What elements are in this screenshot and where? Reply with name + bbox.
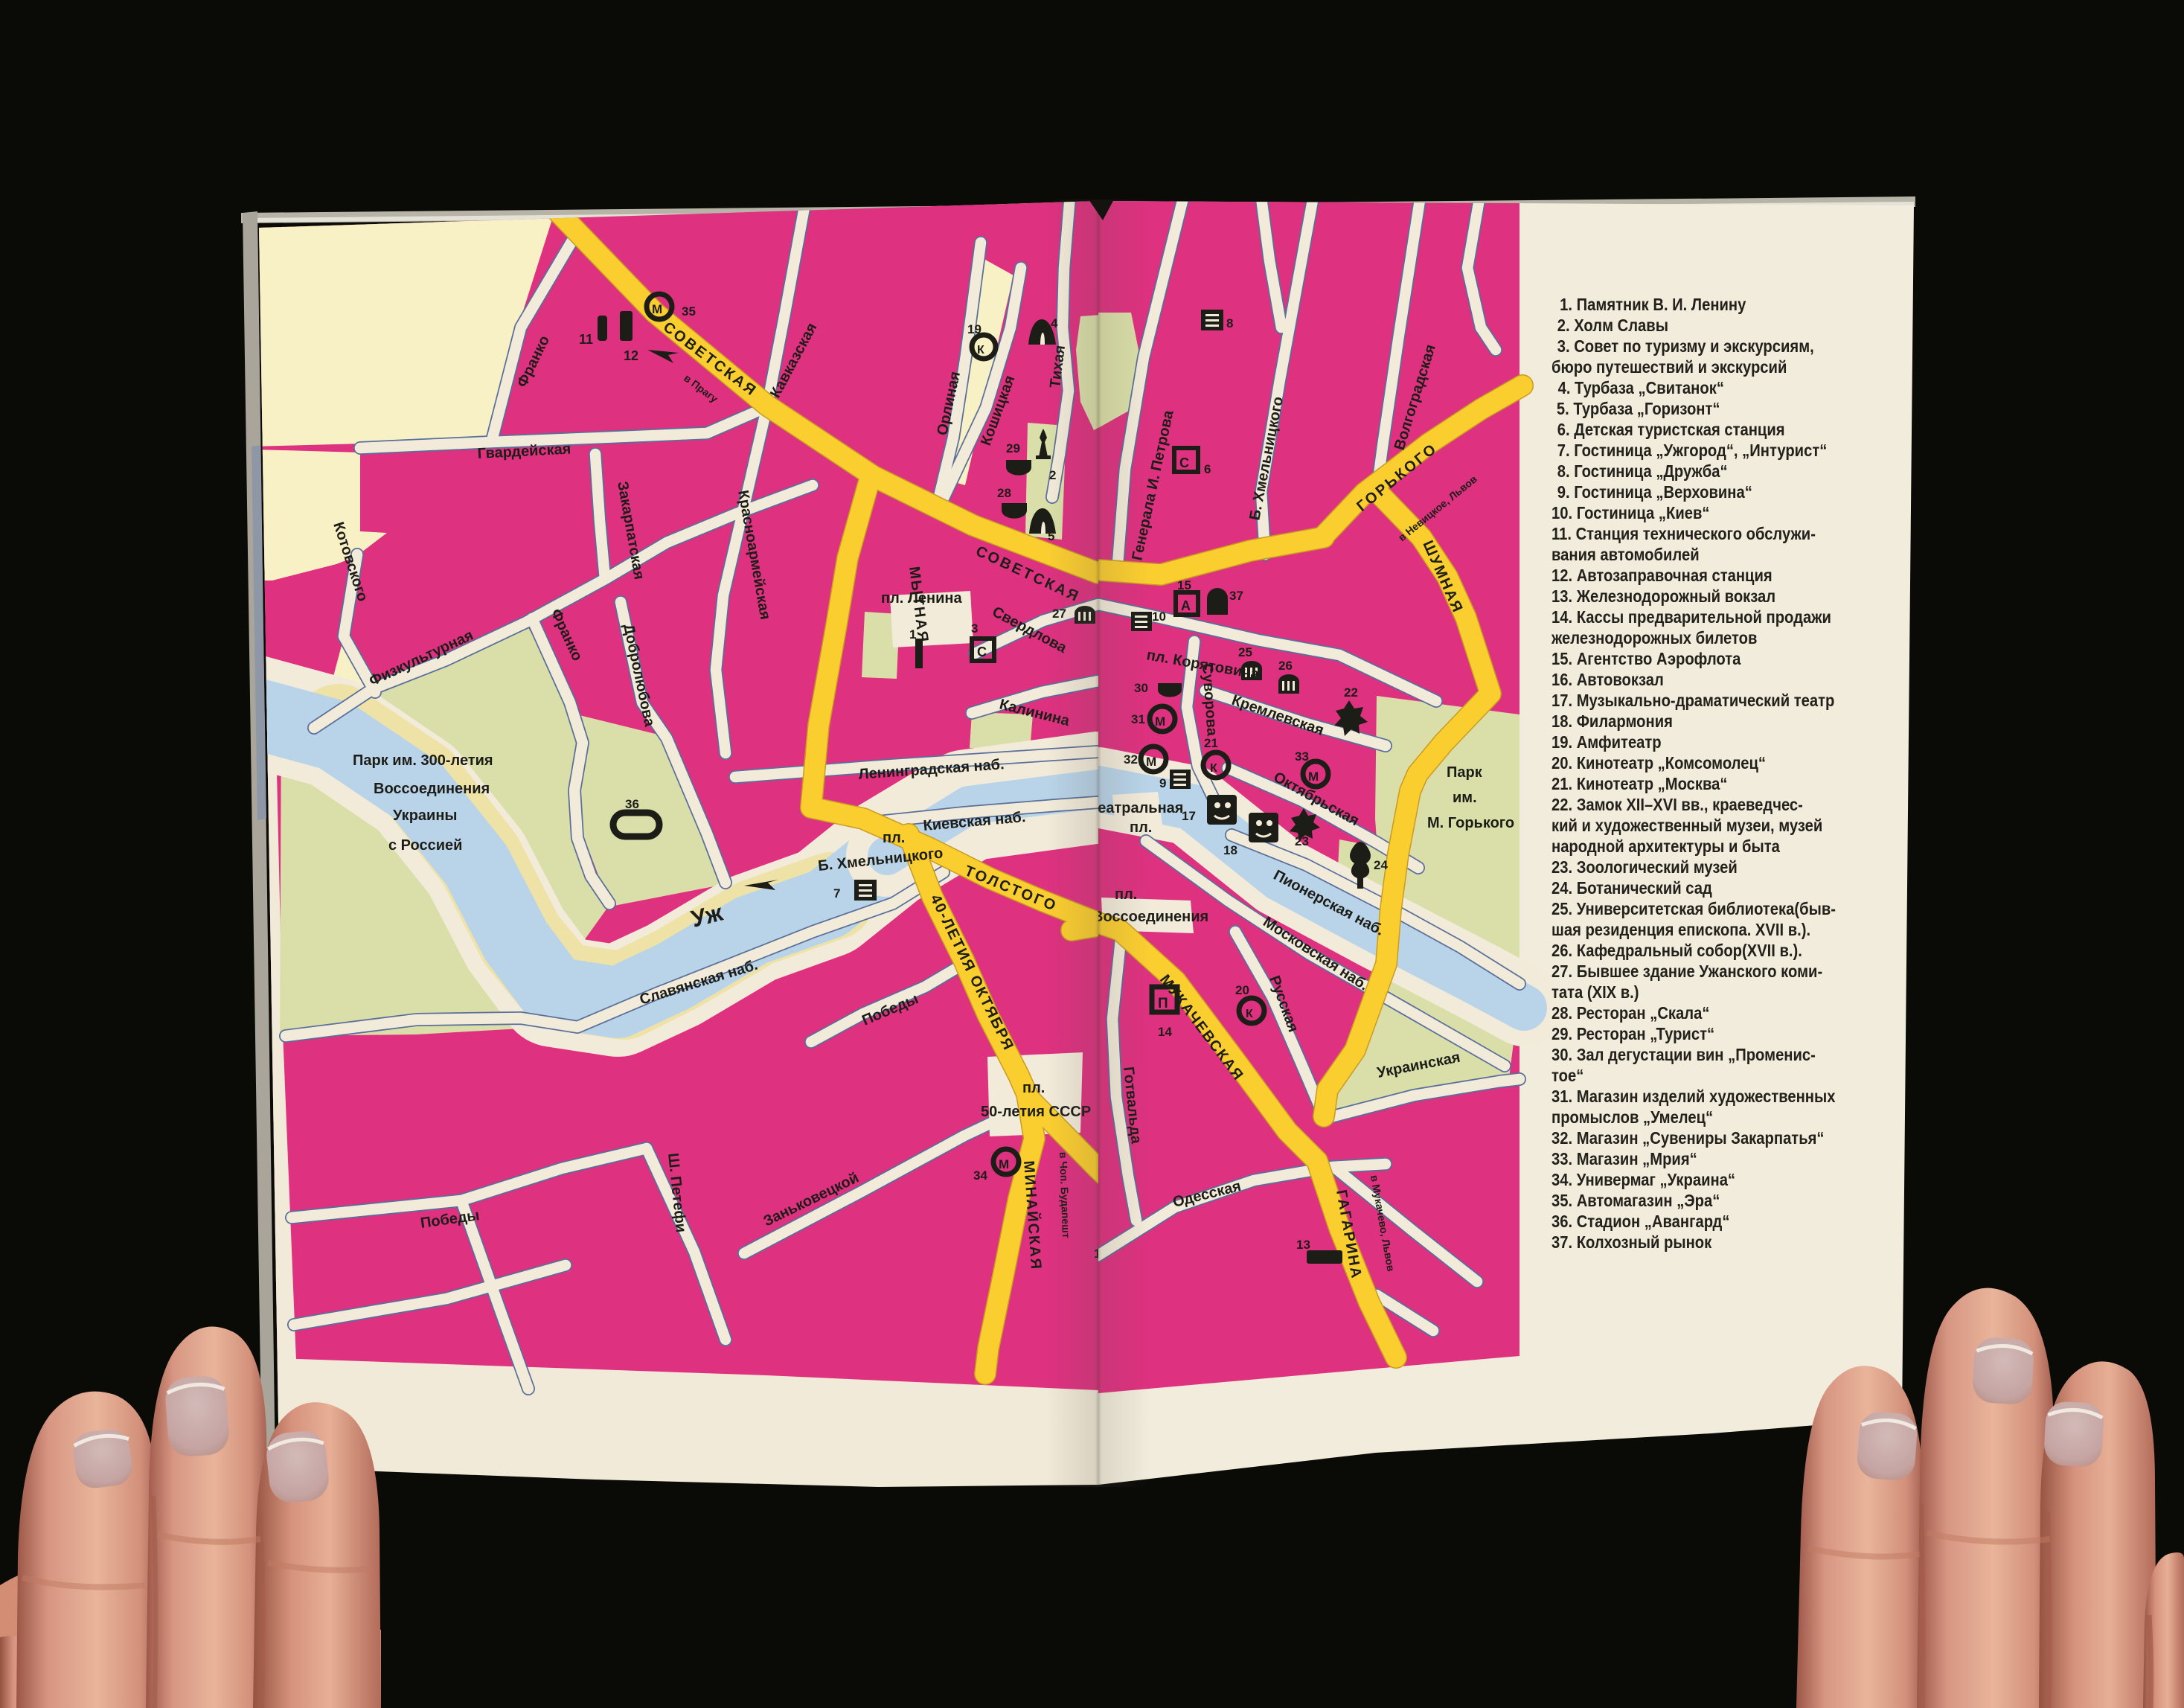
svg-text:пл.: пл. xyxy=(883,830,905,846)
svg-text:29: 29 xyxy=(1006,441,1020,455)
svg-text:вания автомобилей: вания автомобилей xyxy=(1551,545,1700,565)
svg-text:народной архитектуры и быта: народной архитектуры и быта xyxy=(1551,837,1781,857)
svg-text:16. Автовокзал: 16. Автовокзал xyxy=(1551,670,1664,690)
svg-text:26. Кафедральный собор(XVII в.: 26. Кафедральный собор(XVII в.). xyxy=(1551,941,1802,961)
svg-text:им.: им. xyxy=(1453,790,1477,806)
svg-text:22: 22 xyxy=(1344,685,1358,700)
svg-text:К: К xyxy=(977,344,984,356)
svg-text:С: С xyxy=(977,645,987,659)
svg-text:тата (XIX в.): тата (XIX в.) xyxy=(1551,982,1639,1002)
svg-text:25. Университетская библиотека: 25. Университетская библиотека(быв- xyxy=(1551,899,1836,919)
svg-text:23. Зоологический музей: 23. Зоологический музей xyxy=(1551,857,1738,877)
svg-text:17: 17 xyxy=(1182,809,1196,823)
svg-text:6: 6 xyxy=(1204,462,1211,476)
svg-text:36: 36 xyxy=(625,797,639,811)
svg-text:31. Магазин изделий художестве: 31. Магазин изделий художественных xyxy=(1551,1087,1836,1107)
svg-text:34: 34 xyxy=(973,1168,987,1183)
svg-text:железнодорожных билетов: железнодорожных билетов xyxy=(1551,628,1757,648)
svg-text:18. Филармония: 18. Филармония xyxy=(1551,711,1673,732)
svg-text:25: 25 xyxy=(1238,645,1252,659)
svg-text:9: 9 xyxy=(1159,776,1166,790)
svg-text:19: 19 xyxy=(967,322,981,336)
svg-text:35: 35 xyxy=(682,304,696,319)
svg-text:К: К xyxy=(1246,1008,1253,1020)
svg-text:шая резиденция епископа. XVII: шая резиденция епископа. XVII в.). xyxy=(1551,920,1810,940)
svg-text:35. Автомагазин „Эра“: 35. Автомагазин „Эра“ xyxy=(1551,1191,1720,1211)
svg-text:пл.: пл. xyxy=(1022,1080,1045,1096)
svg-text:36. Стадион „Авангард“: 36. Стадион „Авангард“ xyxy=(1551,1212,1729,1232)
svg-text:23: 23 xyxy=(1295,834,1309,848)
svg-text:кий и художественный музеи, му: кий и художественный музеи, музей xyxy=(1551,816,1822,836)
svg-text:А: А xyxy=(1181,598,1191,613)
svg-text:бюро путешествий и экскурсий: бюро путешествий и экскурсий xyxy=(1551,357,1787,377)
svg-text:5. Турбаза „Горизонт“: 5. Турбаза „Горизонт“ xyxy=(1557,399,1720,419)
svg-text:14: 14 xyxy=(1158,1025,1172,1039)
svg-text:12: 12 xyxy=(624,348,638,363)
svg-text:34. Универмаг „Украина“: 34. Универмаг „Украина“ xyxy=(1551,1170,1735,1190)
svg-text:8. Гостиница „Дружба“: 8. Гостиница „Дружба“ xyxy=(1557,461,1728,482)
svg-text:Парк им. 300-летия: Парк им. 300-летия xyxy=(353,752,493,769)
svg-text:1. Памятник В. И. Ленину: 1. Памятник В. И. Ленину xyxy=(1560,295,1746,315)
svg-text:37: 37 xyxy=(1229,589,1243,603)
svg-text:К: К xyxy=(1210,762,1217,775)
svg-text:32. Магазин „Сувениры Закарпат: 32. Магазин „Сувениры Закарпатья“ xyxy=(1551,1128,1825,1148)
svg-text:27. Бывшее здание Ужанского ко: 27. Бывшее здание Ужанского коми- xyxy=(1551,962,1822,982)
svg-text:П: П xyxy=(1158,996,1168,1011)
svg-text:18: 18 xyxy=(1223,843,1237,857)
svg-text:22. Замок XII–XVI вв., краевед: 22. Замок XII–XVI вв., краеведчес- xyxy=(1551,795,1803,815)
svg-text:Воссоединения: Воссоединения xyxy=(374,781,490,797)
svg-text:26: 26 xyxy=(1278,659,1293,673)
svg-text:30. Зал дегустации вин „Промен: 30. Зал дегустации вин „Променис- xyxy=(1551,1045,1816,1065)
svg-text:15. Агентство Аэрофлота: 15. Агентство Аэрофлота xyxy=(1551,649,1741,669)
svg-text:3. Совет по туризму и экскурси: 3. Совет по туризму и экскурсиям, xyxy=(1557,336,1814,356)
svg-text:7: 7 xyxy=(833,886,840,901)
svg-text:37. Колхозный рынок: 37. Колхозный рынок xyxy=(1551,1232,1711,1253)
svg-text:20. Кинотеатр „Комсомолец“: 20. Кинотеатр „Комсомолец“ xyxy=(1551,753,1766,773)
svg-text:Украины: Украины xyxy=(393,807,457,824)
svg-text:2. Холм Славы: 2. Холм Славы xyxy=(1557,316,1668,336)
svg-text:21: 21 xyxy=(1204,736,1218,750)
svg-text:8: 8 xyxy=(1226,316,1233,330)
svg-text:33. Магазин „Мрия“: 33. Магазин „Мрия“ xyxy=(1551,1149,1697,1169)
svg-text:11. Станция технического обслу: 11. Станция технического обслужи- xyxy=(1551,524,1816,544)
svg-text:М: М xyxy=(1308,770,1319,784)
svg-text:9. Гостиница „Верховина“: 9. Гостиница „Верховина“ xyxy=(1557,482,1752,502)
svg-text:10: 10 xyxy=(1152,610,1166,624)
svg-text:промыслов „Умелец“: промыслов „Умелец“ xyxy=(1551,1107,1713,1128)
svg-text:14. Кассы предварительной прод: 14. Кассы предварительной продажи xyxy=(1551,607,1831,627)
svg-text:6. Детская туристская станция: 6. Детская туристская станция xyxy=(1557,420,1785,440)
svg-text:21. Кинотеатр „Москва“: 21. Кинотеатр „Москва“ xyxy=(1551,774,1728,794)
svg-text:20: 20 xyxy=(1235,983,1249,997)
svg-text:28. Ресторан „Скала“: 28. Ресторан „Скала“ xyxy=(1551,1003,1709,1023)
svg-text:пл. Ленина: пл. Ленина xyxy=(881,590,963,607)
svg-text:10. Гостиница „Киев“: 10. Гостиница „Киев“ xyxy=(1551,503,1709,523)
svg-text:4. Турбаза „Свитанок“: 4. Турбаза „Свитанок“ xyxy=(1558,378,1724,398)
svg-text:13. Железнодорожный вокзал: 13. Железнодорожный вокзал xyxy=(1551,586,1775,607)
svg-text:М: М xyxy=(999,1157,1009,1171)
svg-text:13: 13 xyxy=(1296,1238,1310,1252)
svg-text:24: 24 xyxy=(1374,858,1388,872)
svg-text:М. Горького: М. Горького xyxy=(1427,815,1514,831)
svg-text:33: 33 xyxy=(1295,749,1309,764)
svg-text:29. Ресторан „Турист“: 29. Ресторан „Турист“ xyxy=(1551,1024,1714,1044)
svg-text:12. Автозаправочная станция: 12. Автозаправочная станция xyxy=(1551,566,1773,586)
svg-text:С: С xyxy=(1179,455,1189,470)
svg-text:7. Гостиница „Ужгород“, „Интур: 7. Гостиница „Ужгород“, „Интурист“ xyxy=(1557,441,1828,461)
svg-text:11: 11 xyxy=(579,332,593,347)
svg-text:19. Амфитеатр: 19. Амфитеатр xyxy=(1551,732,1662,752)
svg-text:Парк: Парк xyxy=(1447,764,1483,781)
svg-text:24. Ботанический сад: 24. Ботанический сад xyxy=(1551,878,1712,898)
svg-text:28: 28 xyxy=(997,486,1011,500)
svg-text:17. Музыкально-драматический т: 17. Музыкально-драматический театр xyxy=(1551,691,1834,711)
svg-text:М: М xyxy=(652,302,662,316)
svg-text:М: М xyxy=(1155,714,1165,729)
svg-text:с Россией: с Россией xyxy=(388,837,462,854)
svg-text:тое“: тое“ xyxy=(1551,1066,1583,1086)
svg-text:3: 3 xyxy=(971,621,978,636)
